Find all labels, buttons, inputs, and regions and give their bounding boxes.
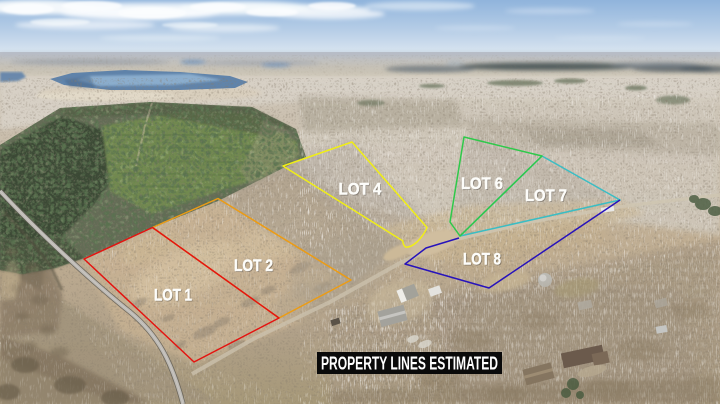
svg-text:LOT 7: LOT 7 [525,186,567,205]
svg-text:LOT 1: LOT 1 [154,286,192,305]
svg-text:LOT 8: LOT 8 [463,250,501,269]
svg-text:PROPERTY LINES ESTIMATED: PROPERTY LINES ESTIMATED [321,353,498,374]
svg-text:LOT 6: LOT 6 [461,174,503,193]
svg-text:LOT 2: LOT 2 [234,256,273,275]
svg-text:LOT 4: LOT 4 [339,180,382,199]
